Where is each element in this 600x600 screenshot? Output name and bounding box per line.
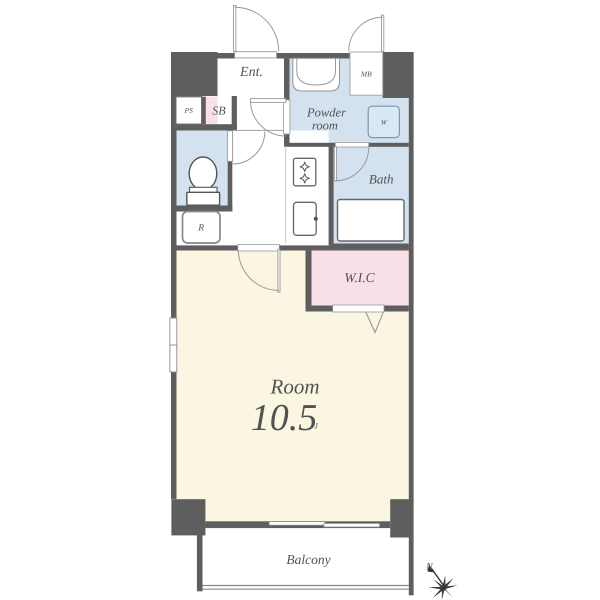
svg-text:W.I.C: W.I.C	[344, 270, 375, 285]
svg-text:Bath: Bath	[369, 172, 394, 187]
svg-text:SB: SB	[212, 104, 226, 118]
svg-text:N: N	[425, 562, 434, 573]
svg-text:Powder: Powder	[306, 106, 346, 120]
svg-text:J: J	[314, 422, 318, 431]
svg-text:MB: MB	[360, 70, 372, 79]
svg-text:10.5: 10.5	[251, 397, 318, 439]
svg-text:room: room	[312, 119, 338, 133]
svg-text:Room: Room	[270, 375, 320, 399]
svg-text:PS: PS	[184, 106, 194, 115]
svg-text:Ent.: Ent.	[239, 65, 263, 80]
svg-text:R: R	[197, 224, 204, 234]
svg-text:Balcony: Balcony	[286, 552, 330, 567]
